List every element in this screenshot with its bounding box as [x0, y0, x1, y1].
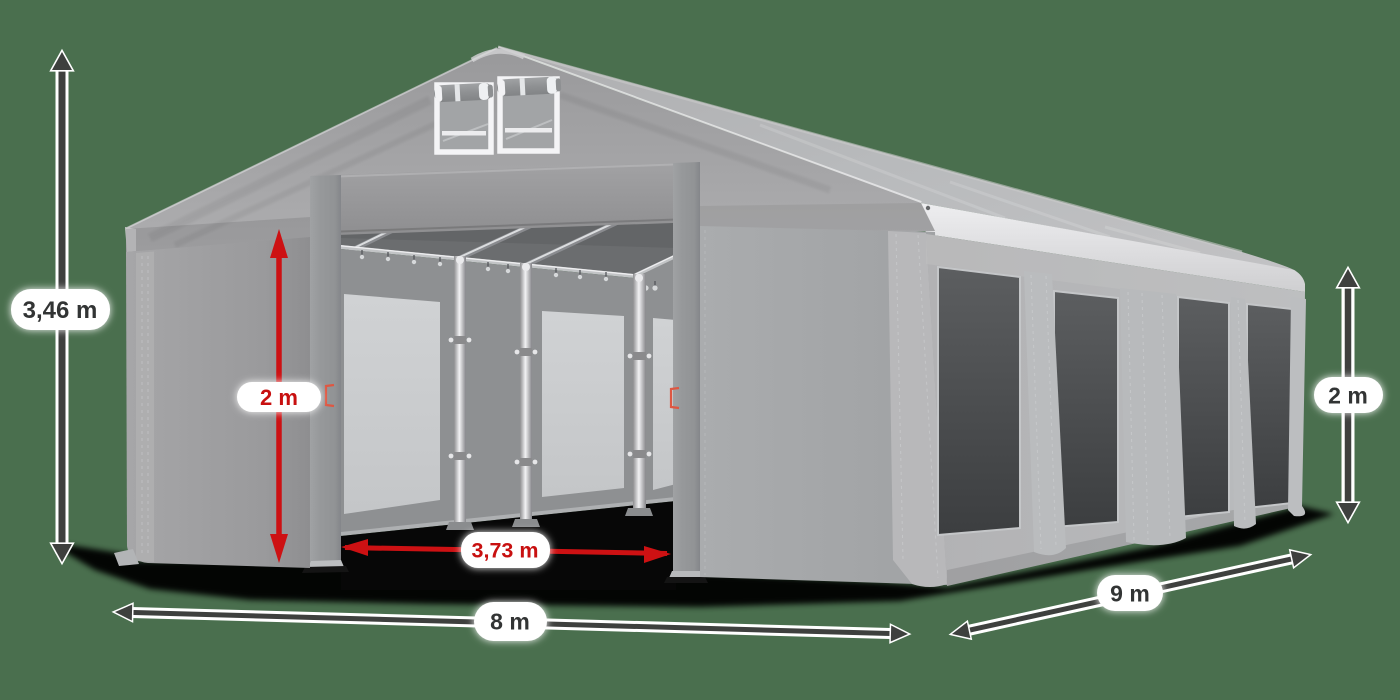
svg-text:8 m: 8 m: [490, 609, 530, 635]
svg-text:2 m: 2 m: [260, 385, 298, 410]
svg-text:3,46 m: 3,46 m: [23, 297, 98, 324]
svg-text:2 m: 2 m: [1328, 383, 1368, 409]
svg-text:3,73 m: 3,73 m: [472, 539, 539, 563]
svg-text:9 m: 9 m: [1110, 581, 1150, 607]
